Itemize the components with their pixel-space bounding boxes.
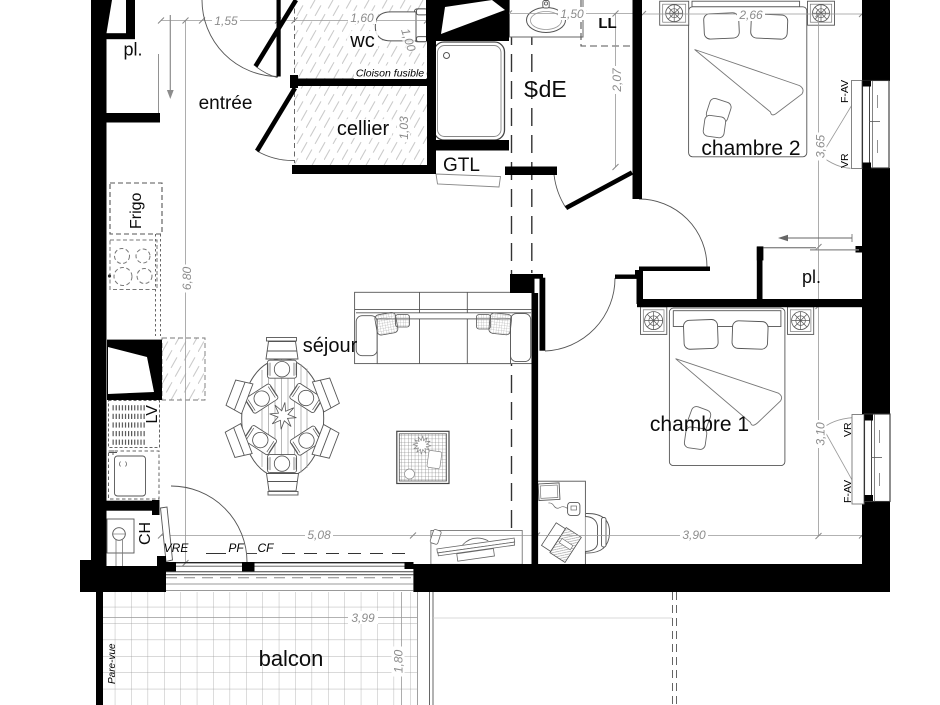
svg-text:2,07: 2,07 <box>610 67 624 93</box>
svg-text:F-AV: F-AV <box>839 80 851 103</box>
svg-text:1,03: 1,03 <box>397 116 411 140</box>
svg-text:pl.: pl. <box>123 40 142 60</box>
svg-text:LL: LL <box>598 15 616 32</box>
svg-text:1,50: 1,50 <box>560 7 584 21</box>
svg-text:VR: VR <box>842 422 854 437</box>
svg-text:PF: PF <box>228 541 244 555</box>
svg-text:3,65: 3,65 <box>814 134 828 158</box>
svg-text:cellier: cellier <box>337 118 390 140</box>
svg-text:pl.: pl. <box>802 267 821 287</box>
svg-text:Cloison fusible: Cloison fusible <box>356 68 424 80</box>
svg-text:VRE: VRE <box>164 541 190 555</box>
svg-text:balcon: balcon <box>259 646 324 671</box>
svg-text:2,66: 2,66 <box>738 8 763 22</box>
svg-text:1,60: 1,60 <box>350 11 374 25</box>
svg-text:3,10: 3,10 <box>814 422 828 446</box>
svg-text:Frigo: Frigo <box>128 192 145 229</box>
svg-text:LV: LV <box>144 405 161 424</box>
svg-text:séjour: séjour <box>303 335 358 357</box>
svg-text:VR: VR <box>839 153 851 168</box>
svg-text:entrée: entrée <box>199 93 253 114</box>
svg-text:6,80: 6,80 <box>180 266 194 290</box>
svg-text:SdE: SdE <box>523 76 566 102</box>
svg-text:1,80: 1,80 <box>392 649 406 673</box>
svg-text:Pare-vue: Pare-vue <box>107 643 118 684</box>
svg-text:chambre 2: chambre 2 <box>701 137 800 160</box>
svg-text:chambre 1: chambre 1 <box>650 413 749 436</box>
svg-text:GTL: GTL <box>443 155 480 176</box>
svg-text:3,90: 3,90 <box>682 528 706 542</box>
svg-text:5,08: 5,08 <box>307 528 331 542</box>
svg-text:1,55: 1,55 <box>214 14 238 28</box>
svg-text:F-AV: F-AV <box>842 480 854 503</box>
svg-text:CH: CH <box>137 522 154 545</box>
svg-text:wc: wc <box>349 30 374 52</box>
svg-text:CF: CF <box>258 541 275 555</box>
svg-text:3,99: 3,99 <box>351 611 375 625</box>
